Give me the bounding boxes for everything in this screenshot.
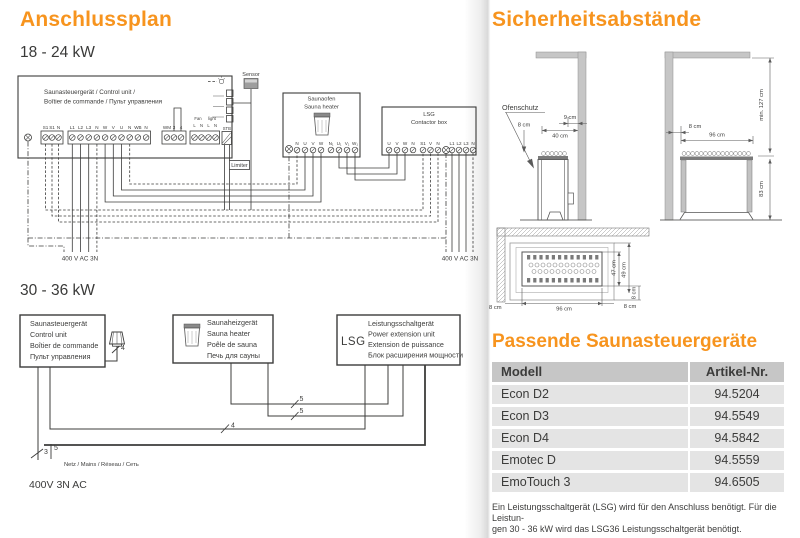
- terminal-label: N: [214, 123, 217, 128]
- wire-number: 3: [44, 449, 48, 456]
- terminal-label: N: [200, 123, 203, 128]
- wire-number: 4: [121, 345, 125, 352]
- wire-number: 5: [300, 396, 304, 403]
- section-18-24kw: 18 - 24 kW: [20, 44, 95, 62]
- dim-label: 47 cm: [612, 260, 618, 276]
- lsg-label-1: LSG: [423, 112, 435, 118]
- heater2-line: Печь для сауны: [207, 351, 260, 360]
- cu2-line: Boîtier de commande: [30, 341, 98, 350]
- dim-label: 96 cm: [556, 307, 572, 313]
- heater-icon: [184, 324, 200, 346]
- table-row: Emotec D 94.5559: [492, 451, 784, 470]
- terminal-label: U: [120, 125, 123, 130]
- section-title-steuergeraete: Passende Saunasteuergeräte: [492, 331, 757, 353]
- cell-model: Econ D2: [492, 385, 688, 404]
- wire-number: 5: [54, 445, 58, 452]
- terminal-label: N: [95, 125, 98, 130]
- terminal-label: L2: [456, 141, 462, 146]
- heater-top: [522, 252, 602, 286]
- cell-model: EmoTouch 3: [492, 473, 688, 492]
- heater2-line: Poêle de sauna: [207, 340, 257, 349]
- footnote-line-1: Ein Leistungsschaltgerät (LSG) wird für …: [492, 502, 777, 523]
- heater2-line: Sauna heater: [207, 329, 251, 338]
- mains-label: Netz / Mains / Réseau / Сеть: [64, 462, 139, 468]
- fan-label: Fan: [194, 116, 202, 121]
- cell-artikelnr: 94.5204: [690, 385, 784, 404]
- table-body: Econ D2 94.5204 Econ D3 94.5549 Econ D4 …: [492, 385, 784, 492]
- terminal-label: S1: [420, 141, 426, 146]
- dim-label: 8 cm: [624, 304, 637, 310]
- dim-label: 8 cm: [689, 124, 702, 130]
- safety-drawings: Ofenschutz 8 cm 9 cm 40 cm 8 cm: [489, 52, 782, 313]
- controls-table: Modell Artikel-Nr. Econ D2 94.5204 Econ …: [492, 362, 784, 495]
- terminal-label: N: [295, 141, 298, 146]
- wall-left: [497, 228, 505, 302]
- dim-label: 83 cm: [759, 181, 765, 197]
- terminal-label: N₁: [329, 141, 334, 146]
- terminal-label: U₁: [337, 141, 342, 146]
- top-view: 47 cm 49 cm 8 cm 8 cm 96 cm 8 cm: [489, 228, 649, 313]
- terminal-label: W: [403, 141, 408, 146]
- heater2-line: Saunaheizgerät: [207, 318, 257, 327]
- terminal-label: W₁: [352, 141, 358, 146]
- terminal-label: WB: [134, 125, 141, 130]
- limiter-label: Limiter: [231, 163, 248, 169]
- terminal-label: L3: [463, 141, 469, 146]
- cell-artikelnr: 94.6505: [690, 473, 784, 492]
- wire-number: 4: [231, 423, 235, 430]
- terminal-label: N: [436, 141, 439, 146]
- cell-artikelnr: 94.5549: [690, 407, 784, 426]
- lsg-contactor-box: LSG Contactor box U V W N S1 V N L1 L2 L…: [382, 107, 476, 155]
- control-unit-label-2: Boîtier de commande / Пульт управления: [44, 99, 162, 106]
- terminal-label: U: [387, 141, 390, 146]
- cell-artikelnr: 94.5559: [690, 451, 784, 470]
- sauna-heater-box: Saunaofen Sauna heater N U V W N₁ U₁ V₁ …: [283, 93, 360, 157]
- sensor-label: Sensor: [242, 72, 260, 78]
- terminal-label: N: [471, 141, 474, 146]
- cu2-line: Saunasteuergerät: [30, 319, 87, 328]
- table-header-row: Modell Artikel-Nr.: [492, 362, 784, 382]
- dim-label: 8 cm: [632, 287, 638, 300]
- lsg-abbr: LSG: [341, 336, 366, 348]
- ground-icon: [443, 147, 450, 154]
- footnote-line-2: gen 30 - 36 kW wird das LSG36 Leistungss…: [492, 524, 742, 534]
- terminal-label: WM: [163, 125, 171, 130]
- front-view: Ofenschutz 8 cm 9 cm 40 cm: [502, 52, 592, 220]
- terminal-label: U: [303, 141, 306, 146]
- dim-label: 8 cm: [518, 123, 531, 129]
- terminal-label: N: [57, 125, 60, 130]
- table-row: EmoTouch 3 94.6505: [492, 473, 784, 492]
- cu2-line: Пульт управления: [30, 352, 91, 361]
- sensor: Sensor: [242, 72, 260, 89]
- supply-right-label: 400 V AC 3N: [442, 256, 479, 263]
- cell-artikelnr: 94.5842: [690, 429, 784, 448]
- terminal-label: W: [319, 141, 324, 146]
- supply-label-2: 400V 3N AC: [29, 479, 87, 491]
- dim-label: 8 cm: [489, 305, 502, 311]
- dim-label: 40 cm: [552, 134, 568, 140]
- supply-left-label: 400 V AC 3N: [62, 256, 99, 263]
- control-unit-box-2: Saunasteuergerät Control unit Boîtier de…: [20, 315, 105, 367]
- control-unit-label-1: Saunasteuergerät / Control unit /: [44, 89, 135, 96]
- table-row: Econ D3 94.5549: [492, 407, 784, 426]
- table-row: Econ D2 94.5204: [492, 385, 784, 404]
- dim-label: 9 cm: [564, 115, 577, 121]
- dim-label: 96 cm: [709, 133, 725, 139]
- limiter: Limiter: [230, 161, 250, 170]
- heater-box-2: Saunaheizgerät Sauna heater Poêle de sau…: [173, 315, 273, 363]
- lsg-box-2: LSG Leistungsschaltgerät Power extension…: [337, 315, 463, 365]
- lsg2-line: Power extension unit: [368, 330, 435, 339]
- heater-label-1: Saunaofen: [307, 97, 335, 103]
- footnote: Ein Leistungsschaltgerät (LSG) wird für …: [492, 502, 792, 535]
- wall: [665, 52, 673, 220]
- diagram-30-36kw: Saunasteuergerät Control unit Boîtier de…: [20, 315, 463, 491]
- table-row: Econ D4 94.5842: [492, 429, 784, 448]
- ceiling: [665, 52, 750, 58]
- terminal-label: L1: [449, 141, 455, 146]
- page-title-sicherheitsabstaende: Sicherheitsabstände: [492, 8, 701, 32]
- lsg-label-2: Contactor box: [411, 120, 447, 126]
- terminal-label: W: [103, 125, 108, 130]
- table-header-modell: Modell: [492, 362, 688, 382]
- terminal-label: V₁: [345, 141, 350, 146]
- lsg2-line: Extension de puissance: [368, 340, 444, 349]
- page-title-anschlussplan: Anschlussplan: [20, 8, 172, 32]
- terminal-label: S1: [49, 125, 55, 130]
- terminal-label: N: [128, 125, 131, 130]
- ofenschutz-label: Ofenschutz: [502, 103, 539, 112]
- ground-icon: [286, 146, 293, 153]
- dim-label: 49 cm: [622, 262, 628, 278]
- side-view: 8 cm 96 cm min. 127 cm 83 cm: [660, 52, 782, 220]
- manual-page: Saunasteuergerät / Control unit / Boîtie…: [0, 0, 800, 538]
- lsg2-line: Блок расширения мощности: [368, 351, 463, 360]
- heater-label-2: Sauna heater: [304, 105, 339, 111]
- terminal-label: S1: [43, 125, 49, 130]
- control-unit-box: Saunasteuergerät / Control unit / Boîtie…: [18, 76, 233, 158]
- cell-model: Econ D4: [492, 429, 688, 448]
- table-header-artikelnr: Artikel-Nr.: [690, 362, 784, 382]
- terminal-label: L1: [70, 125, 76, 130]
- heater-icon: [314, 113, 330, 135]
- cell-model: Econ D3: [492, 407, 688, 426]
- wall-top: [497, 228, 649, 236]
- section-30-36kw: 30 - 36 kW: [20, 282, 95, 300]
- cell-model: Emotec D: [492, 451, 688, 470]
- terminal-label: L2: [78, 125, 84, 130]
- wire-number: 5: [300, 408, 304, 415]
- cu2-line: Control unit: [30, 330, 67, 339]
- wiring-18-24: 400 V AC 3N 400 V AC 3N: [28, 142, 479, 263]
- terminal-label: N: [411, 141, 414, 146]
- stb-label: STB: [223, 126, 231, 131]
- heater-side: [680, 152, 753, 220]
- terminal-label: N: [144, 125, 147, 130]
- lsg2-line: Leistungsschaltgerät: [368, 319, 434, 328]
- dim-label: min. 127 cm: [759, 89, 765, 121]
- ground-icon: [25, 134, 32, 141]
- wall: [578, 52, 586, 220]
- diagram-18-24kw: Saunasteuergerät / Control unit / Boîtie…: [18, 72, 479, 263]
- heater-front: [538, 152, 574, 220]
- terminal-label: L3: [86, 125, 92, 130]
